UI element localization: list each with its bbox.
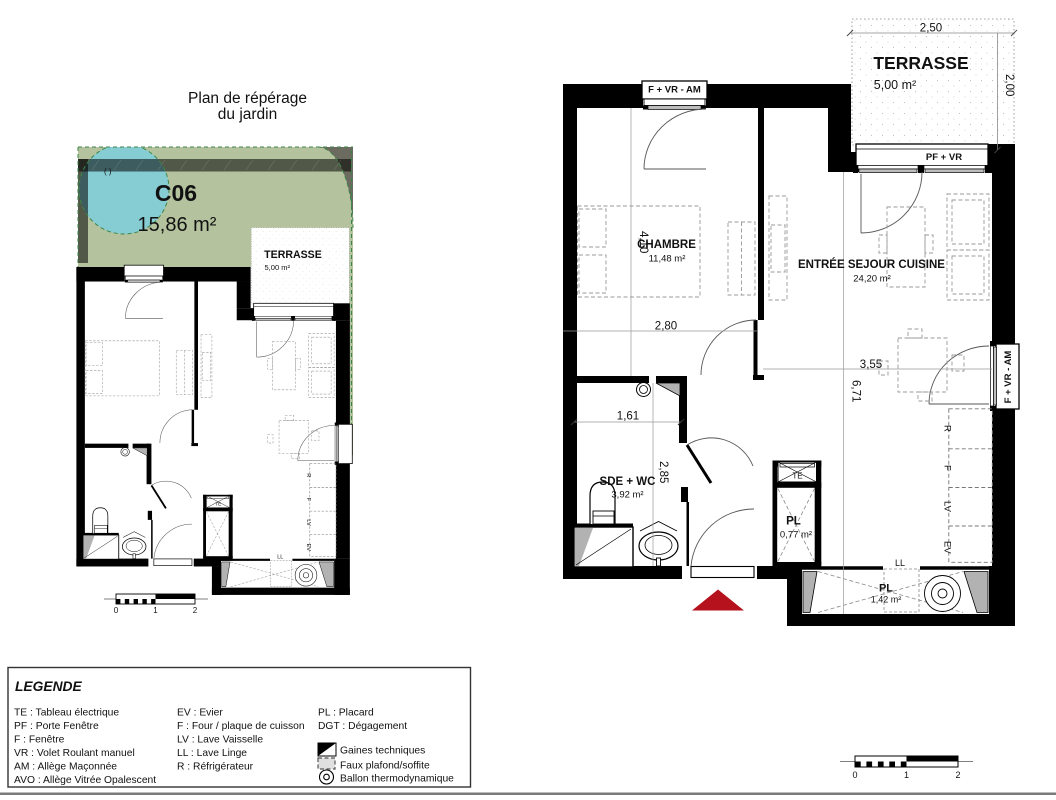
svg-text:F + VR - AM: F + VR - AM: [1003, 351, 1014, 404]
svg-text:1,42 m²: 1,42 m²: [871, 595, 902, 605]
svg-text:ENTRÉE SEJOUR CUISINE: ENTRÉE SEJOUR CUISINE: [798, 258, 945, 271]
svg-text:1: 1: [904, 770, 909, 780]
svg-text:DGT : Dégagement: DGT : Dégagement: [318, 721, 407, 732]
svg-text:15,86 m²: 15,86 m²: [138, 214, 217, 236]
svg-text:Ballon thermodynamique: Ballon thermodynamique: [340, 774, 454, 785]
svg-text:LV : Lave Vaisselle: LV : Lave Vaisselle: [177, 735, 263, 746]
svg-text:3,55: 3,55: [860, 359, 882, 371]
svg-text:1,61: 1,61: [617, 411, 639, 423]
svg-text:0,77 m²: 0,77 m²: [780, 530, 812, 541]
svg-text:PF + VR: PF + VR: [926, 152, 962, 163]
svg-text:PF : Porte Fenêtre: PF : Porte Fenêtre: [14, 721, 99, 732]
svg-text:3,92 m²: 3,92 m²: [611, 490, 643, 501]
svg-text:11,48 m²: 11,48 m²: [649, 254, 686, 265]
svg-text:2: 2: [955, 770, 960, 780]
svg-text:EV : Evier: EV : Evier: [177, 708, 223, 719]
svg-text:VR : Volet Roulant manuel: VR : Volet Roulant manuel: [14, 748, 135, 759]
svg-text:Faux plafond/soffite: Faux plafond/soffite: [340, 761, 430, 772]
svg-text:C06: C06: [155, 180, 197, 206]
svg-text:F + VR - AM: F + VR - AM: [648, 85, 701, 96]
svg-text:1: 1: [153, 606, 158, 615]
svg-text:PL : Placard: PL : Placard: [318, 708, 374, 719]
svg-text:6,71: 6,71: [850, 380, 862, 402]
svg-text:2,80: 2,80: [655, 321, 677, 333]
svg-text:Plan de répérage: Plan de répérage: [188, 90, 307, 107]
svg-text:( ): ( ): [104, 167, 112, 176]
svg-text:0: 0: [114, 606, 119, 615]
svg-text:R : Réfrigérateur: R : Réfrigérateur: [177, 762, 254, 773]
svg-text:F : Four / plaque de cuisson: F : Four / plaque de cuisson: [177, 721, 305, 732]
svg-text:Gaines techniques: Gaines techniques: [340, 746, 425, 757]
svg-text:LL : Lave Linge: LL : Lave Linge: [177, 748, 247, 759]
svg-text:F : Fenêtre: F : Fenêtre: [14, 735, 65, 746]
svg-text:2,50: 2,50: [920, 23, 942, 35]
svg-text:24,20 m²: 24,20 m²: [853, 274, 891, 285]
svg-text:LEGENDE: LEGENDE: [15, 679, 82, 694]
svg-text:2: 2: [193, 606, 198, 615]
svg-text:0: 0: [852, 770, 857, 780]
svg-text:PL: PL: [786, 516, 801, 528]
svg-text:du jardin: du jardin: [218, 106, 277, 123]
svg-text:2,85: 2,85: [657, 461, 669, 483]
svg-text:CHAMBRE: CHAMBRE: [637, 239, 696, 251]
svg-text:TE : Tableau électrique: TE : Tableau électrique: [14, 708, 119, 719]
svg-text:AM : Allège Maçonnée: AM : Allège Maçonnée: [14, 762, 117, 773]
svg-text:AVO : Allège Vitrée Opalescen: AVO : Allège Vitrée Opalescent: [14, 775, 156, 786]
svg-text:SDE + WC: SDE + WC: [600, 476, 656, 488]
svg-text:2,00: 2,00: [1003, 74, 1015, 96]
svg-text:PL: PL: [879, 583, 893, 595]
